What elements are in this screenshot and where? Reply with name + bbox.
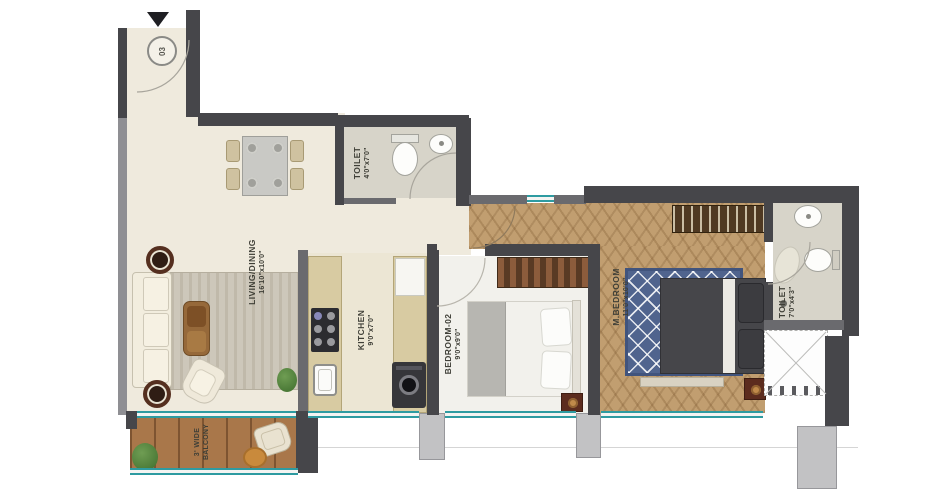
wall xyxy=(584,186,855,203)
dining-chair xyxy=(290,140,304,162)
room-label-mbedroom: M.BEDROOM 11'0"x10'0" xyxy=(611,268,631,325)
wall xyxy=(588,244,600,415)
window xyxy=(445,411,576,418)
shaft-hatch xyxy=(768,386,824,395)
wall xyxy=(554,195,586,204)
kitchen-platform xyxy=(395,258,425,296)
room-name: BEDROOM-02 xyxy=(443,314,454,375)
room-label-balcony: 3' WIDE BALCONY xyxy=(193,424,211,460)
room-label-bedroom2: BEDROOM-02 9'0"x9'0" xyxy=(443,314,463,375)
room-dims: 4'0"x7'0" xyxy=(363,147,372,178)
burner xyxy=(327,338,335,346)
potted-plant-icon xyxy=(146,246,174,274)
dining-chair xyxy=(290,168,304,190)
wall xyxy=(298,250,308,415)
coffee-table-tray xyxy=(187,306,206,327)
wall xyxy=(427,244,437,256)
bed-blanket xyxy=(468,302,506,396)
pillow xyxy=(540,350,572,390)
room-name: TOILET xyxy=(352,147,363,179)
entrance-arrow-icon xyxy=(147,12,169,27)
lamp-icon xyxy=(751,385,761,395)
room-dims: 9'0"x9'0" xyxy=(454,328,463,359)
room-dims: 9'0"x7'0" xyxy=(367,314,376,345)
column xyxy=(797,426,837,489)
room-name: LIVING/DINING xyxy=(247,239,258,305)
balcony-plant-icon xyxy=(132,443,158,471)
plate xyxy=(272,142,284,154)
headboard xyxy=(572,300,581,398)
room-dims: 7'0"x4'3" xyxy=(788,286,797,317)
window xyxy=(601,411,763,418)
sofa xyxy=(132,272,172,388)
wall xyxy=(126,411,137,429)
floor-plan: 03 LIVING/DINING 16'10"x10'0" TOILET 4'0… xyxy=(0,0,940,490)
pillow xyxy=(738,329,764,369)
wall xyxy=(485,244,600,256)
plate xyxy=(272,177,284,189)
armchair-seat xyxy=(187,367,218,399)
dining-table xyxy=(242,136,288,196)
pillow xyxy=(540,307,573,347)
wardrobe xyxy=(672,205,768,233)
burner xyxy=(314,338,322,346)
kitchen-sink-icon xyxy=(313,364,337,396)
plate xyxy=(246,177,258,189)
potted-plant-icon xyxy=(143,380,171,408)
wall xyxy=(344,198,396,204)
wall xyxy=(335,115,344,205)
basin-tap xyxy=(806,214,811,219)
sofa-cushion xyxy=(143,313,169,347)
wall xyxy=(118,28,127,120)
room-label-toilet1: TOILET 4'0"x7'0" xyxy=(352,147,372,179)
room-dims: 16'10"x10'0" xyxy=(258,250,267,294)
gas-stove-icon xyxy=(311,308,339,352)
washer-door xyxy=(399,375,419,395)
bedside-table xyxy=(744,378,766,400)
washbasin-icon xyxy=(794,205,822,228)
unit-number-badge: 03 xyxy=(147,36,177,66)
passage-floor xyxy=(345,198,471,255)
coffee-table-tray xyxy=(187,331,206,352)
bed xyxy=(467,301,579,397)
plate xyxy=(246,142,258,154)
wall xyxy=(456,118,471,206)
bed-bench xyxy=(640,377,724,387)
wall xyxy=(338,115,469,127)
window xyxy=(527,195,554,202)
bed xyxy=(660,278,766,374)
room-label-kitchen: KITCHEN 9'0"x7'0" xyxy=(356,310,376,351)
wall xyxy=(427,250,439,415)
wall xyxy=(764,200,773,242)
room-name: KITCHEN xyxy=(356,310,367,351)
sofa-cushion xyxy=(143,277,169,311)
washer-panel xyxy=(396,366,422,370)
wall xyxy=(764,320,844,330)
toilet-wc-icon xyxy=(804,248,832,272)
floor-plant-icon xyxy=(277,368,297,392)
wall xyxy=(198,113,338,126)
window xyxy=(308,411,419,418)
bed-sheet-fold xyxy=(723,279,735,373)
bedside-table xyxy=(561,393,583,412)
dining-chair xyxy=(226,140,240,162)
chair-seat xyxy=(260,427,286,451)
column xyxy=(576,413,601,458)
wall xyxy=(825,336,849,426)
room-dims: 11'0"x10'0" xyxy=(622,277,631,316)
washing-machine-icon xyxy=(392,362,426,408)
room-dims: BALCONY xyxy=(202,424,211,460)
wardrobe xyxy=(497,257,589,288)
wc-cistern xyxy=(832,250,840,270)
coffee-table xyxy=(183,301,210,356)
window xyxy=(137,411,296,418)
burner xyxy=(314,312,322,320)
wall xyxy=(296,411,318,473)
room-name: 3' WIDE xyxy=(193,428,202,457)
sink-bowl xyxy=(318,369,332,391)
wall xyxy=(469,195,527,204)
room-name: M.BEDROOM xyxy=(611,268,622,325)
unit-number: 03 xyxy=(158,47,167,56)
wall xyxy=(842,186,859,336)
column xyxy=(419,413,445,460)
room-label-toilet2: TOILET 7'0"x4'3" xyxy=(777,286,797,318)
toilet-wc-icon xyxy=(392,142,418,176)
sofa-cushion xyxy=(143,349,169,383)
wall xyxy=(118,118,127,415)
basin-tap xyxy=(439,141,444,146)
burner xyxy=(327,312,335,320)
burner xyxy=(327,325,335,333)
balcony-table xyxy=(243,447,267,468)
room-label-living: LIVING/DINING 16'10"x10'0" xyxy=(247,239,267,305)
burner xyxy=(314,325,322,333)
dining-chair xyxy=(226,168,240,190)
washbasin-icon xyxy=(429,134,453,154)
lamp-icon xyxy=(568,398,578,408)
wall xyxy=(186,10,200,117)
balcony-railing xyxy=(130,468,298,475)
room-name: TOILET xyxy=(777,286,788,318)
pillow xyxy=(738,283,764,323)
